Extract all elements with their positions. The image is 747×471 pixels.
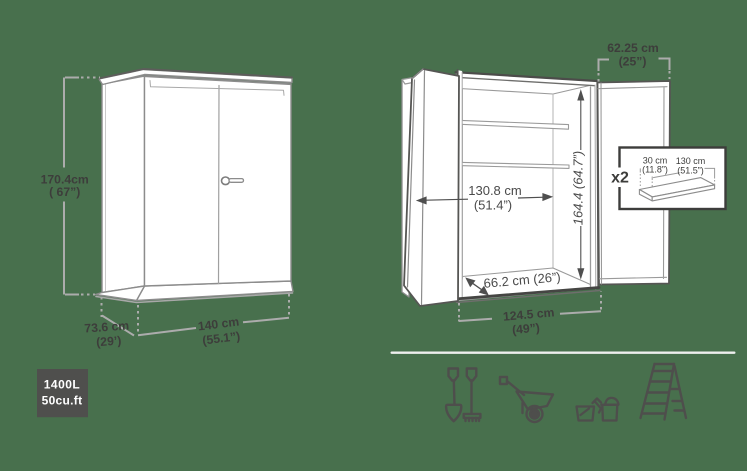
- svg-text:(25”): (25”): [619, 55, 647, 69]
- svg-text:(11.8”): (11.8”): [642, 165, 668, 175]
- svg-text:130.8 cm: 130.8 cm: [468, 183, 521, 198]
- svg-text:1400L: 1400L: [44, 378, 81, 392]
- svg-text:( 67”): ( 67”): [49, 185, 80, 199]
- svg-text:50cu.ft: 50cu.ft: [42, 393, 83, 407]
- svg-text:(29’): (29’): [96, 334, 122, 350]
- svg-text:(51.5”): (51.5”): [677, 165, 704, 175]
- svg-text:62.25 cm: 62.25 cm: [607, 41, 659, 55]
- svg-text:x2: x2: [611, 170, 629, 187]
- svg-text:(51.4”): (51.4”): [474, 198, 512, 213]
- svg-text:(49”): (49”): [511, 321, 540, 337]
- svg-text:164.4 (64.7”): 164.4 (64.7”): [571, 151, 586, 225]
